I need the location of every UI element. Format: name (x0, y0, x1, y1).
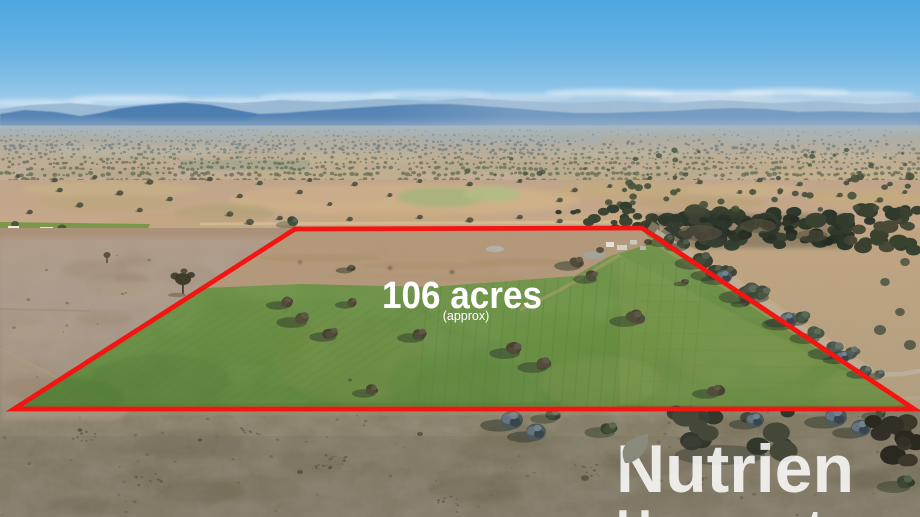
svg-text:Harcourts: Harcourts (616, 500, 851, 517)
svg-text:Nutrien: Nutrien (616, 431, 854, 507)
svg-text:(approx): (approx) (443, 309, 490, 323)
